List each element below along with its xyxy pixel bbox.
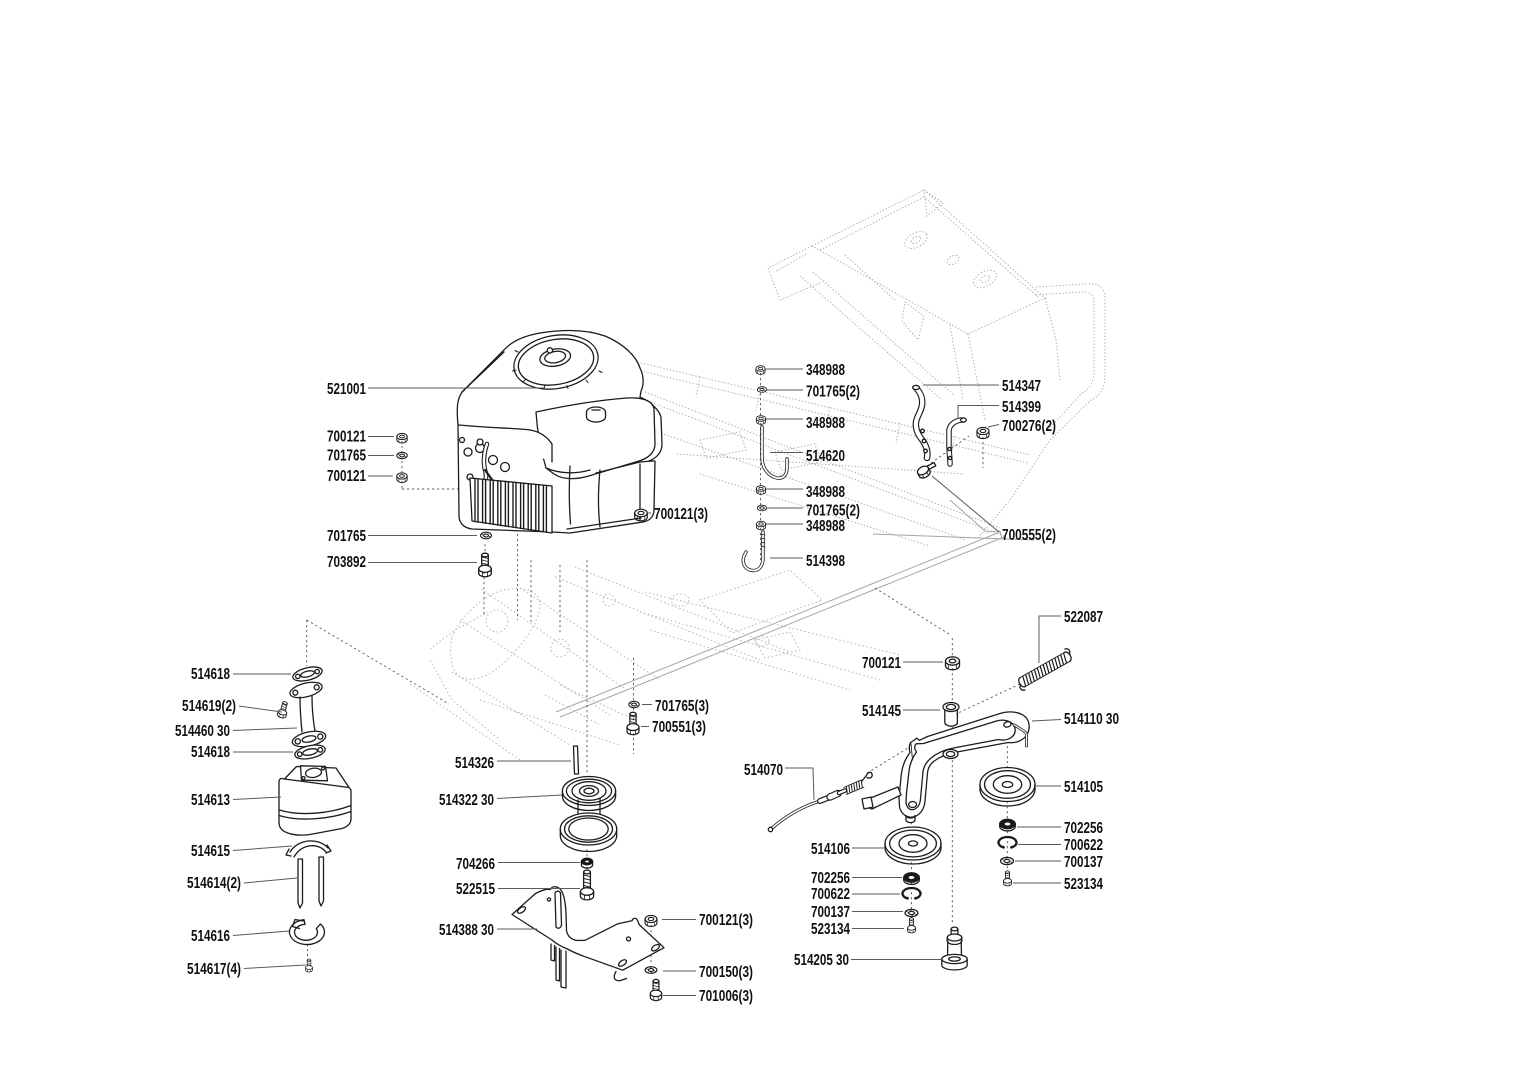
svg-text:700622: 700622 [1064, 837, 1103, 854]
svg-text:514617(4): 514617(4) [187, 961, 241, 978]
svg-text:701765(2): 701765(2) [806, 384, 860, 401]
svg-text:700276(2): 700276(2) [1002, 418, 1056, 435]
svg-text:700150(3): 700150(3) [699, 964, 753, 981]
svg-text:514619(2): 514619(2) [182, 698, 236, 715]
svg-text:514110 30: 514110 30 [1064, 711, 1119, 728]
svg-text:704266: 704266 [456, 856, 495, 873]
svg-text:514205 30: 514205 30 [794, 952, 849, 969]
svg-text:701765(2): 701765(2) [806, 503, 860, 520]
svg-text:514388 30: 514388 30 [439, 922, 494, 939]
svg-text:701765: 701765 [327, 448, 366, 465]
svg-text:348988: 348988 [806, 362, 845, 379]
svg-text:702256: 702256 [1064, 820, 1103, 837]
svg-text:514618: 514618 [191, 666, 230, 683]
svg-text:700555(2): 700555(2) [1002, 527, 1056, 544]
svg-text:514615: 514615 [191, 843, 230, 860]
svg-text:700137: 700137 [811, 904, 850, 921]
svg-text:514616: 514616 [191, 928, 230, 945]
svg-text:514070: 514070 [744, 762, 783, 779]
svg-text:348988: 348988 [806, 415, 845, 432]
svg-text:701006(3): 701006(3) [699, 988, 753, 1005]
svg-text:522515: 522515 [456, 881, 495, 898]
svg-text:348988: 348988 [806, 484, 845, 501]
svg-text:514620: 514620 [806, 448, 845, 465]
svg-text:514106: 514106 [811, 841, 850, 858]
svg-text:700121: 700121 [862, 655, 901, 672]
svg-text:514398: 514398 [806, 553, 845, 570]
svg-text:700121: 700121 [327, 468, 366, 485]
svg-text:700622: 700622 [811, 886, 850, 903]
svg-text:514347: 514347 [1002, 378, 1041, 395]
svg-text:700121: 700121 [327, 429, 366, 446]
svg-text:514145: 514145 [862, 703, 901, 720]
svg-text:514326: 514326 [455, 755, 494, 772]
svg-text:514613: 514613 [191, 792, 230, 809]
svg-text:514105: 514105 [1064, 779, 1103, 796]
svg-text:348988: 348988 [806, 518, 845, 535]
svg-text:701765: 701765 [327, 528, 366, 545]
svg-text:700121(3): 700121(3) [654, 506, 708, 523]
svg-text:702256: 702256 [811, 870, 850, 887]
svg-text:700551(3): 700551(3) [652, 719, 706, 736]
svg-text:523134: 523134 [1064, 876, 1103, 893]
svg-text:700137: 700137 [1064, 854, 1103, 871]
svg-text:522087: 522087 [1064, 609, 1103, 626]
svg-text:701765(3): 701765(3) [655, 698, 709, 715]
svg-text:514460 30: 514460 30 [175, 723, 230, 740]
svg-text:514618: 514618 [191, 744, 230, 761]
svg-text:523134: 523134 [811, 921, 850, 938]
svg-text:514614(2): 514614(2) [187, 875, 241, 892]
svg-text:703892: 703892 [327, 554, 366, 571]
svg-text:514399: 514399 [1002, 399, 1041, 416]
svg-text:521001: 521001 [327, 381, 366, 398]
svg-text:514322 30: 514322 30 [439, 792, 494, 809]
svg-text:700121(3): 700121(3) [699, 912, 753, 929]
